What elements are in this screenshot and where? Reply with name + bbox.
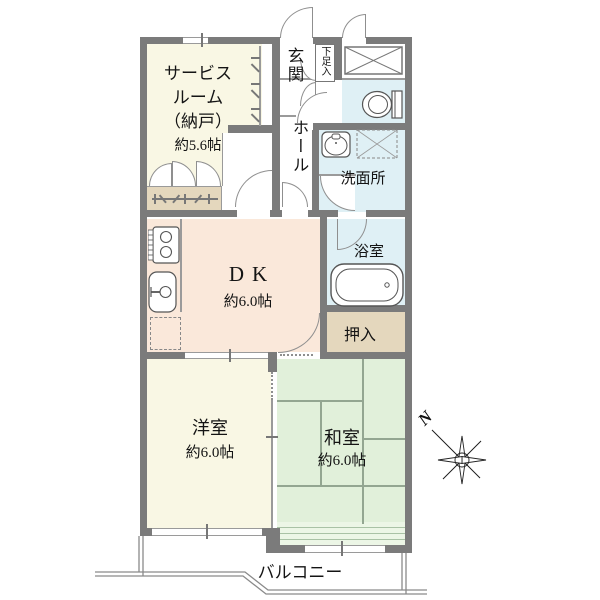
- floor-plan: 下足入: [0, 0, 600, 600]
- room-label-japanese: 和室: [282, 424, 402, 450]
- wall-segment: [270, 210, 282, 217]
- wall-segment: [366, 210, 412, 217]
- room-label-service-room: サービス ルーム （納戸） 約5.6帖: [142, 62, 254, 158]
- room-label-line: ルーム: [142, 86, 254, 110]
- trunk-closet-cross: [344, 46, 403, 75]
- wall-segment: [335, 44, 342, 80]
- tatami-line: [362, 485, 364, 524]
- room-label-bathroom: 浴室: [330, 240, 408, 261]
- room-size-japanese: 約6.0帖: [282, 449, 402, 470]
- room-divider-line: [271, 400, 273, 528]
- room-label-oshiire: 押入: [320, 321, 400, 345]
- north-label: N: [413, 407, 436, 430]
- refrigerator-space: [150, 317, 181, 350]
- wall-segment: [147, 210, 237, 217]
- toilet-icon: [360, 88, 404, 121]
- hanger-mark: [208, 194, 210, 204]
- window-tick: [201, 33, 203, 47]
- door-arc: [282, 182, 308, 207]
- room-size-western: 約6.0帖: [150, 441, 270, 462]
- room-label-line: （納戸）: [142, 110, 254, 134]
- wall-segment: [320, 352, 412, 359]
- hanger-mark: [184, 194, 186, 204]
- bathtub-icon: [330, 263, 404, 307]
- window-tick: [229, 349, 231, 362]
- window: [185, 352, 268, 359]
- room-label-washroom: 洗面所: [322, 167, 404, 188]
- shoe-cabinet-label: 下足入: [319, 46, 329, 76]
- fusuma-dotted-line: [271, 372, 273, 400]
- wall-segment: [140, 352, 185, 359]
- wall-segment: [308, 210, 338, 217]
- wall-segment: [312, 130, 319, 212]
- wall-segment: [313, 37, 342, 44]
- wall-segment: [268, 352, 277, 372]
- room-label-line: サービス: [142, 62, 254, 86]
- stove-icon: [148, 226, 180, 264]
- room-label-balcony: バルコニー: [240, 558, 360, 583]
- compass-rose: N: [410, 392, 510, 502]
- tatami-line: [277, 485, 405, 487]
- room-label-entrance: 玄関: [282, 47, 306, 84]
- fusuma-dotted-line: [280, 354, 313, 356]
- washing-machine-space: [356, 129, 398, 159]
- window: [183, 37, 208, 44]
- hanger-mark: [154, 194, 156, 204]
- kitchen-counter-line: [180, 219, 182, 312]
- room-label-dk: DK: [188, 262, 308, 287]
- door-arc: [280, 7, 313, 38]
- door-arc: [342, 14, 366, 38]
- room-label-western: 洋室: [150, 414, 270, 440]
- partition-tick: [251, 57, 260, 59]
- room-size-label: 約5.6帖: [142, 134, 254, 158]
- hall-boundary-line: [280, 115, 296, 117]
- trunk-toilet-line: [342, 78, 405, 80]
- room-label-hall: ホール: [287, 119, 311, 175]
- kitchen-sink-icon: [148, 270, 178, 314]
- washbasin-icon: [321, 131, 351, 158]
- room-size-dk: 約6.0帖: [188, 290, 308, 311]
- wall-segment: [208, 37, 280, 44]
- tatami-line: [362, 359, 364, 401]
